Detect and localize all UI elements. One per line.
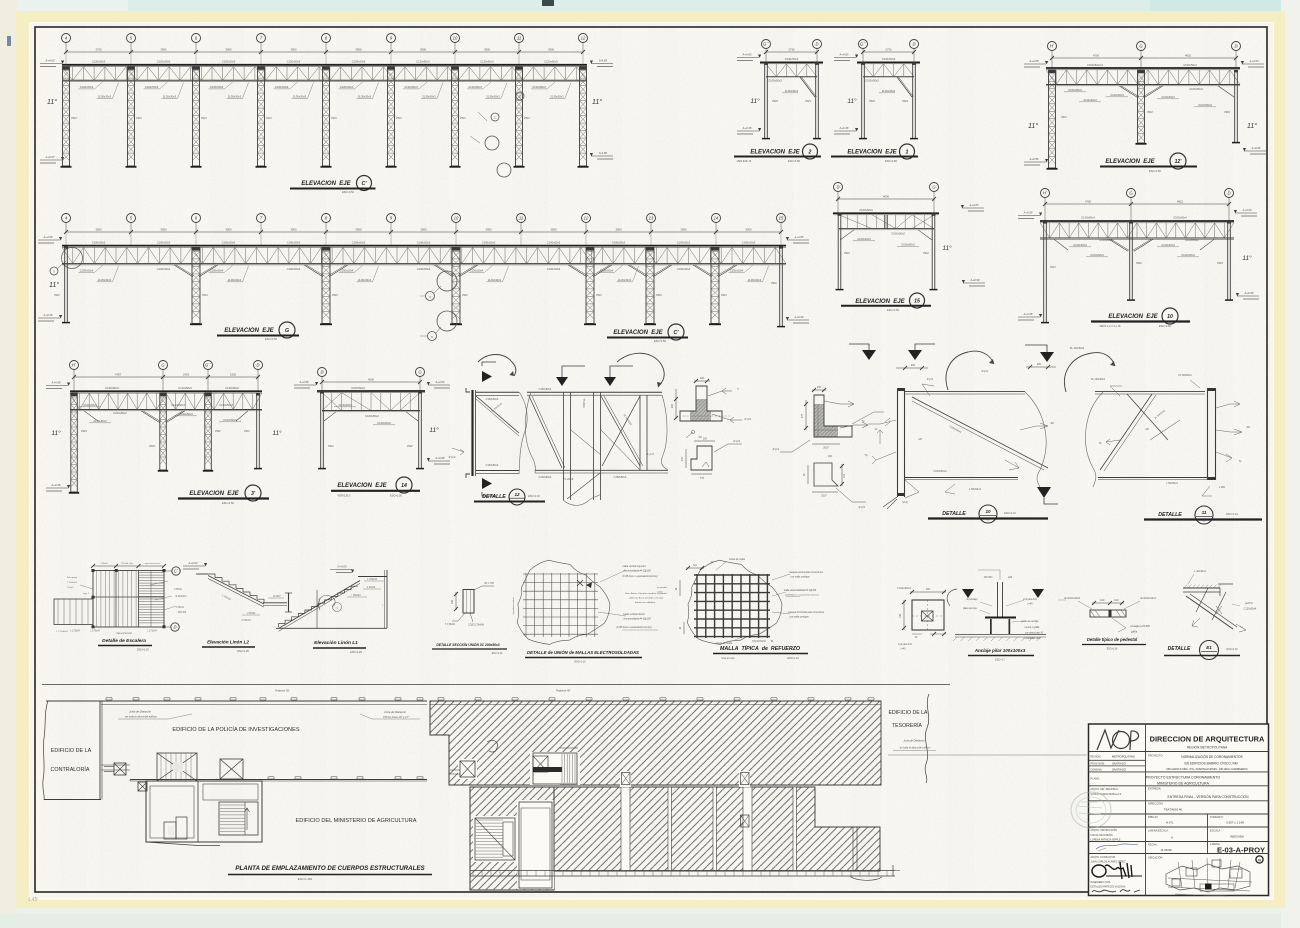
svg-text:10: 10 xyxy=(1167,314,1173,320)
svg-text:110: 110 xyxy=(843,473,846,477)
svg-text:C150x50x4: C150x50x4 xyxy=(600,269,614,273)
svg-text:2L30x30x3: 2L30x30x3 xyxy=(550,95,564,99)
svg-text:2L30x30x3: 2L30x30x3 xyxy=(785,89,799,93)
svg-text:7M: 7M xyxy=(698,436,701,439)
svg-text:C100x50x3: C100x50x3 xyxy=(222,240,236,244)
svg-text:ELEVACION EJE: ELEVACION EJE xyxy=(613,330,663,336)
svg-text:armadura vertical: armadura vertical xyxy=(512,597,515,614)
svg-text:ESC=1:10: ESC=1:10 xyxy=(528,495,540,498)
svg-text:C150x50x4: C150x50x4 xyxy=(730,269,744,273)
svg-text:TEATINOS 40: TEATINOS 40 xyxy=(1164,808,1183,812)
svg-text:2L30x30x3: 2L30x30x3 xyxy=(1073,243,1087,247)
svg-text:A+0.48: A+0.48 xyxy=(43,313,53,317)
svg-text:R p=1: R p=1 xyxy=(773,448,780,451)
svg-text:ELEVACION EJE: ELEVACION EJE xyxy=(750,150,800,156)
svg-text:REGION METROPOLITANA: REGION METROPOLITANA xyxy=(1187,746,1228,750)
svg-text:en toda la altura del edificio: en toda la altura del edificio xyxy=(900,747,931,750)
svg-text:2+0 para A=0: 2+0 para A=0 xyxy=(898,643,913,646)
svg-text:ESC=1:7: ESC=1:7 xyxy=(995,659,1005,662)
svg-text:(x10): (x10) xyxy=(902,501,908,504)
svg-text:PM3: PM3 xyxy=(805,99,811,103)
svg-text:11°: 11° xyxy=(429,426,439,434)
svg-text:C100x50x4: C100x50x4 xyxy=(547,267,561,271)
svg-text:C120x50x3: C120x50x3 xyxy=(532,85,546,89)
svg-text:C100x50x3: C100x50x3 xyxy=(1068,88,1082,92)
svg-text:C120x50x3: C120x50x3 xyxy=(287,60,301,64)
svg-text:ELEVACION EJE: ELEVACION EJE xyxy=(337,483,387,489)
svg-text:C100x50x4: C100x50x4 xyxy=(417,267,431,271)
svg-text:+ cuadrada 100x: + cuadrada 100x xyxy=(1023,637,1041,640)
svg-text:2 30x04: 2 30x04 xyxy=(367,586,376,589)
svg-text:EDIFICIO DE LA POLICÍA DE INVE: EDIFICIO DE LA POLICÍA DE INVESTIGACIONE… xyxy=(172,726,299,733)
svg-text:12(S2 170x04): 12(S2 170x04) xyxy=(468,624,484,627)
svg-text:C100x50x4: C100x50x4 xyxy=(351,386,365,390)
svg-text:C150x50x4: C150x50x4 xyxy=(210,269,224,273)
svg-text:175x04x3: 175x04x3 xyxy=(67,582,77,584)
svg-text:C100x50x3: C100x50x3 xyxy=(1189,87,1203,91)
svg-text:A: A xyxy=(1171,836,1173,840)
svg-text:A+0.48: A+0.48 xyxy=(742,126,752,130)
svg-text:275: 275 xyxy=(801,413,804,418)
svg-text:A+4.63: A+4.63 xyxy=(188,561,198,565)
svg-text:1M: 1M xyxy=(1246,426,1249,429)
svg-text:11°: 11° xyxy=(750,97,760,105)
svg-text:PM3: PM3 xyxy=(1217,261,1223,265)
svg-text:4L p=4: 4L p=4 xyxy=(646,453,654,456)
svg-text:C120x50x3: C120x50x3 xyxy=(416,60,430,64)
svg-text:PM2: PM2 xyxy=(1147,110,1153,114)
svg-text:A+0.80: A+0.80 xyxy=(794,315,804,319)
svg-text:3900: 3900 xyxy=(681,228,687,232)
svg-text:11°: 11° xyxy=(51,429,61,437)
svg-text:D: D xyxy=(256,363,259,368)
svg-text:A+4.65: A+4.65 xyxy=(969,203,979,207)
svg-text:2L30x30x3: 2L30x30x3 xyxy=(857,237,871,241)
svg-text:Y: Y xyxy=(737,387,739,391)
svg-text:ESC=1:50: ESC=1:50 xyxy=(265,337,277,341)
svg-text:U 30x04: U 30x04 xyxy=(247,613,256,615)
svg-text:11°: 11° xyxy=(1247,122,1257,130)
svg-text:C100x50x3: C100x50x3 xyxy=(933,469,947,473)
svg-text:maquea vertical para conexione: maquea vertical para conexiones xyxy=(789,571,824,574)
svg-text:MIN AGRICULTURA - POL. INVESTI: MIN AGRICULTURA - POL. INVESTIGACIONES -… xyxy=(1166,768,1248,771)
svg-text:PM1: PM1 xyxy=(844,251,850,255)
svg-text:D: D xyxy=(320,370,323,375)
svg-text:ESC=1:50: ESC=1:50 xyxy=(222,501,234,505)
svg-text:C100x50x3: C100x50x3 xyxy=(859,208,873,212)
svg-text:PM1: PM1 xyxy=(54,293,60,297)
svg-text:2L30x30x3: 2L30x30x3 xyxy=(163,95,177,99)
svg-text:Detalle típico de pedestal: Detalle típico de pedestal xyxy=(1087,637,1138,642)
svg-text:PM1: PM1 xyxy=(331,116,337,120)
svg-text:NORMALIZACIÓN DE CORONAMIENTOS: NORMALIZACIÓN DE CORONAMIENTOS xyxy=(1181,754,1242,759)
svg-text:1/10: 1/10 xyxy=(1114,599,1119,602)
svg-text:L 175x04: L 175x04 xyxy=(70,631,80,633)
svg-text:electrosoldada #4.2@100: electrosoldada #4.2@100 xyxy=(623,570,651,573)
svg-text:EDIFICIO DE LA: EDIFICIO DE LA xyxy=(889,710,928,716)
svg-text:C100x50x2: C100x50x2 xyxy=(891,232,905,236)
svg-text:A (Anclaje): A (Anclaje) xyxy=(966,598,977,601)
svg-text:PM2: PM2 xyxy=(771,281,777,285)
svg-text:10: 10 xyxy=(453,36,458,41)
svg-text:maquea horizontal para conexio: maquea horizontal para conexiones xyxy=(788,611,825,614)
svg-text:E1: E1 xyxy=(1206,645,1212,650)
svg-text:Anclaje pilar 100x100x3: Anclaje pilar 100x100x3 xyxy=(974,648,1026,653)
svg-text:C120x50x3: C120x50x3 xyxy=(377,421,391,425)
svg-text:C120x50x3: C120x50x3 xyxy=(80,85,94,89)
svg-text:A+4.65: A+4.65 xyxy=(839,53,849,57)
svg-text:(C/38 Acero o equivalente técn: (C/38 Acero o equivalente técnico) xyxy=(785,594,819,597)
svg-text:PM1: PM1 xyxy=(396,116,402,120)
svg-text:D: D xyxy=(1234,44,1237,49)
svg-text:4000: 4000 xyxy=(368,378,374,382)
svg-text:VER EJE 3: VER EJE 3 xyxy=(338,494,352,498)
svg-text:C100x50x3: C100x50x3 xyxy=(677,240,691,244)
svg-text:2L30x30x3: 2L30x30x3 xyxy=(98,95,112,99)
svg-text:C100x50x3: C100x50x3 xyxy=(223,418,237,422)
svg-text:R p=1: R p=1 xyxy=(927,378,934,381)
svg-text:D: D xyxy=(836,185,839,190)
svg-text:ESC=1:10: ESC=1:10 xyxy=(788,657,800,660)
svg-text:PM1: PM1 xyxy=(244,429,250,433)
svg-text:ESC=1:50: ESC=1:50 xyxy=(342,190,354,194)
svg-text:PM1: PM1 xyxy=(656,293,662,297)
svg-text:13: 13 xyxy=(649,216,654,221)
svg-text:15: 15 xyxy=(779,216,784,221)
svg-text:30 = 7M: 30 = 7M xyxy=(484,581,493,585)
svg-text:2L70x30x3: 2L70x30x3 xyxy=(338,403,352,407)
svg-text:C150x50x4: C150x50x4 xyxy=(80,269,94,273)
svg-text:viga estructural: viga estructural xyxy=(116,632,132,635)
svg-text:2L30x30x3: 2L30x30x3 xyxy=(1083,98,1097,102)
svg-text:ESC=1:25: ESC=1:25 xyxy=(137,649,149,652)
svg-text:C120x50x3: C120x50x3 xyxy=(178,386,192,390)
svg-text:A+4.68: A+4.68 xyxy=(299,380,309,384)
svg-text:C120x50x3: C120x50x3 xyxy=(145,85,159,89)
svg-text:TL/3x3: TL/3x3 xyxy=(67,587,74,589)
svg-text:A+0.98: A+0.98 xyxy=(435,456,445,460)
svg-text:3900: 3900 xyxy=(746,228,752,232)
svg-text:G´´: G´´ xyxy=(763,42,770,47)
svg-text:A+4.63: A+4.63 xyxy=(1249,59,1259,63)
svg-text:riel 110x110x4: riel 110x110x4 xyxy=(1064,597,1080,600)
svg-text:INDICADA: INDICADA xyxy=(1230,835,1244,839)
svg-text:150 en pisos 10° y 11°: 150 en pisos 10° y 11° xyxy=(383,715,409,719)
svg-text:DETALLE de UNIÓN de MALLAS ELE: DETALLE de UNIÓN de MALLAS ELECTROSOLDAD… xyxy=(527,650,639,655)
svg-text:perfil C: perfil C xyxy=(1244,602,1253,605)
svg-text:LORENA PATRICIA IEPPLE: LORENA PATRICIA IEPPLE xyxy=(1091,839,1121,842)
svg-text:PM3: PM3 xyxy=(869,99,875,103)
svg-text:2730: 2730 xyxy=(886,48,892,52)
svg-text:LAMINA/ESCALA:: LAMINA/ESCALA: xyxy=(1148,830,1169,833)
svg-text:W30: W30 xyxy=(319,597,321,602)
svg-text:2L30x30x3: 2L30x30x3 xyxy=(488,278,502,282)
svg-text:DETA 1,2,3 4 y 16: DETA 1,2,3 4 y 16 xyxy=(1100,324,1121,328)
svg-text:malla electrosoldada #4.2@100: malla electrosoldada #4.2@100 xyxy=(784,589,817,592)
svg-text:TS-160x8: TS-160x8 xyxy=(563,478,574,481)
svg-text:spfb: spfb xyxy=(1008,577,1013,579)
svg-text:S-4.65: S-4.65 xyxy=(599,59,608,63)
svg-text:11: 11 xyxy=(517,36,521,41)
svg-text:MALLA TÍPICA de REFUERZO: MALLA TÍPICA de REFUERZO xyxy=(720,645,801,652)
svg-text:PM1: PM1 xyxy=(596,293,602,297)
svg-text:ESCALA:: ESCALA: xyxy=(1210,829,1221,833)
svg-text:PM2: PM2 xyxy=(923,251,929,255)
svg-text:ESC=1:10: ESC=1:10 xyxy=(492,653,503,655)
svg-text:C100x50x3: C100x50x3 xyxy=(547,240,561,244)
svg-text:Junta de Dilatación: Junta de Dilatación xyxy=(903,740,925,743)
svg-text:PL 100x50x4: PL 100x50x4 xyxy=(1070,347,1085,350)
svg-text:ESC=1:50: ESC=1:50 xyxy=(390,494,402,498)
svg-text:2: 2 xyxy=(808,150,812,156)
svg-text:100: 100 xyxy=(700,377,705,380)
svg-text:H´: H´ xyxy=(1043,191,1048,196)
svg-text:C100x50x3: C100x50x3 xyxy=(179,412,193,416)
svg-text:DIR 300: DIR 300 xyxy=(178,612,187,614)
svg-text:2 TRU04: 2 TRU04 xyxy=(241,620,251,622)
svg-text:ESC=1:10: ESC=1:10 xyxy=(1227,648,1239,651)
svg-text:L=40: L=40 xyxy=(900,649,906,651)
svg-text:3900: 3900 xyxy=(356,228,362,232)
svg-text:con malla contigua: con malla contigua xyxy=(789,616,809,619)
svg-text:C100x50x4: C100x50x4 xyxy=(1173,216,1187,220)
svg-text:L 175x04: L 175x04 xyxy=(90,631,100,633)
svg-text:C150x50x3-3: C150x50x3-3 xyxy=(1087,63,1103,67)
svg-text:PM1: PM1 xyxy=(201,116,207,120)
svg-text:EDIFICIO DEL MINISTERIO DE AGR: EDIFICIO DEL MINISTERIO DE AGRICULTURA xyxy=(296,818,417,824)
svg-text:3900: 3900 xyxy=(486,228,492,232)
svg-text:PM1: PM1 xyxy=(1061,115,1067,119)
svg-text:ELEVACION EJE: ELEVACION EJE xyxy=(1108,314,1158,320)
svg-text:placa de tope: placa de tope xyxy=(963,607,978,610)
svg-text:PM3: PM3 xyxy=(902,99,908,103)
svg-text:C100x50x3: C100x50x3 xyxy=(157,240,171,244)
svg-text:Junta de Dilatación: Junta de Dilatación xyxy=(129,710,152,714)
svg-text:PLANTA DE EMPLAZAMIENTO DE CUE: PLANTA DE EMPLAZAMIENTO DE CUERPOS ESTRU… xyxy=(235,865,425,872)
svg-text:L 50x50x4: L 50x50x4 xyxy=(1166,482,1178,485)
svg-text:A+0.90: A+0.90 xyxy=(970,278,980,282)
svg-text:ENTREGA:: ENTREGA: xyxy=(1148,787,1162,791)
svg-text:ESC=1:50: ESC=1:50 xyxy=(887,308,899,312)
svg-text:tuerca y golilla: tuerca y golilla xyxy=(1025,626,1040,629)
svg-text:C100x50x3: C100x50x3 xyxy=(1185,238,1199,242)
svg-text:170: 170 xyxy=(681,456,684,461)
svg-text:PLANO:: PLANO: xyxy=(1091,777,1101,781)
svg-text:C120x50x4: C120x50x4 xyxy=(1244,608,1257,611)
svg-text:R p=1: R p=1 xyxy=(734,439,742,443)
svg-text:A+0.48: A+0.48 xyxy=(839,126,849,130)
svg-text:PM1: PM1 xyxy=(1050,265,1056,269)
svg-text:175x04 (Tp): 175x04 (Tp) xyxy=(121,563,133,565)
svg-text:2L30x30x3: 2L30x30x3 xyxy=(358,278,372,282)
svg-text:100 H04: 100 H04 xyxy=(984,577,993,579)
svg-text:2L30x30x3: 2L30x30x3 xyxy=(1161,95,1175,99)
svg-text:C120x50x3: C120x50x3 xyxy=(92,60,106,64)
svg-text:2007: 2007 xyxy=(823,447,829,450)
svg-text:DETALLE: DETALLE xyxy=(1158,512,1182,518)
svg-text:100: 100 xyxy=(899,613,902,618)
svg-text:3900: 3900 xyxy=(226,228,232,232)
svg-text:PM3: PM3 xyxy=(149,444,155,448)
svg-text:DETALLE: DETALLE xyxy=(1168,646,1191,652)
svg-text:I 150x04: I 150x04 xyxy=(351,594,361,597)
svg-text:INGENIERO CIVIL: INGENIERO CIVIL xyxy=(1091,881,1112,884)
svg-text:Teatinos 40: Teatinos 40 xyxy=(556,689,571,693)
svg-text:se pueden: se pueden xyxy=(657,587,668,589)
svg-text:A+4.63: A+4.63 xyxy=(45,59,55,63)
svg-text:borde de malla: borde de malla xyxy=(716,642,732,645)
svg-text:C130x50x4: C130x50x4 xyxy=(1081,216,1095,220)
svg-text:FORMATO:: FORMATO: xyxy=(1210,815,1224,819)
svg-text:ESC=1:50: ESC=1:50 xyxy=(788,159,800,163)
svg-text:C150x50x3: C150x50x3 xyxy=(539,388,552,391)
svg-text:200: 200 xyxy=(671,403,674,408)
svg-text:11°: 11° xyxy=(272,429,282,437)
svg-text:3900: 3900 xyxy=(420,48,426,52)
svg-text:B 150?: B 150? xyxy=(273,596,281,598)
svg-text:2L30x30x3: 2L30x30x3 xyxy=(422,95,436,99)
svg-text:100: 100 xyxy=(926,588,931,591)
svg-text:3900: 3900 xyxy=(548,48,554,52)
svg-text:3900: 3900 xyxy=(161,228,167,232)
svg-text:C120x50x3: C120x50x3 xyxy=(404,85,418,89)
svg-text:PM1: PM1 xyxy=(460,116,466,120)
svg-text:D: D xyxy=(815,42,818,47)
svg-text:C100x50x3: C100x50x3 xyxy=(742,240,756,244)
svg-text:perno de anclaje: perno de anclaje xyxy=(1022,620,1040,623)
svg-text:11: 11 xyxy=(519,216,523,221)
svg-text:A+4.63: A+4.63 xyxy=(1242,208,1252,212)
svg-text:R p=4: R p=4 xyxy=(449,456,456,459)
svg-text:VER EJE 13: VER EJE 13 xyxy=(737,159,752,163)
svg-text:100: 100 xyxy=(817,386,822,389)
svg-text:ESC=1:10: ESC=1:10 xyxy=(575,661,587,664)
svg-text:MINISTERIO DE AGRICULTURA: MINISTERIO DE AGRICULTURA xyxy=(1157,781,1210,785)
svg-text:A+0.98: A+0.98 xyxy=(1251,146,1261,150)
svg-text:H´: H´ xyxy=(1050,44,1055,49)
svg-text:R p=1: R p=1 xyxy=(859,506,866,509)
svg-text:C130x50x2: C130x50x2 xyxy=(225,386,239,390)
svg-text:A+4.68: A+4.68 xyxy=(51,381,61,385)
svg-text:C100x50x3: C100x50x3 xyxy=(768,79,782,83)
svg-text:C150x50x4: C150x50x4 xyxy=(1183,63,1197,67)
svg-text:4787: 4787 xyxy=(115,373,121,377)
svg-text:200: 200 xyxy=(911,364,916,367)
svg-text:C150x50x3: C150x50x3 xyxy=(105,386,119,390)
svg-text:12: 12 xyxy=(514,492,520,497)
svg-text:12: 12 xyxy=(584,216,589,221)
svg-text:C100x50x4: C100x50x4 xyxy=(677,267,691,271)
svg-text:C120x50x3: C120x50x3 xyxy=(1110,93,1124,97)
svg-text:L 175x04: L 175x04 xyxy=(147,631,157,633)
svg-text:A+4.68: A+4.68 xyxy=(1029,59,1039,63)
svg-text:ESC=1:50: ESC=1:50 xyxy=(654,339,666,343)
svg-text:14: 14 xyxy=(714,216,719,221)
svg-text:PM1: PM1 xyxy=(721,293,727,297)
svg-text:PM3: PM3 xyxy=(1224,110,1230,114)
svg-text:C120x50x3: C120x50x3 xyxy=(352,60,366,64)
svg-text:2L30x30x3: 2L30x30x3 xyxy=(228,95,242,99)
svg-text:ELEVACION EJE: ELEVACION EJE xyxy=(224,328,274,334)
svg-text:CONTRALORÍA: CONTRALORÍA xyxy=(51,766,90,773)
svg-text:1/10: 1/10 xyxy=(1100,599,1105,602)
svg-text:3900: 3900 xyxy=(551,228,557,232)
svg-text:PM1: PM1 xyxy=(328,444,334,448)
svg-text:C150x50x3: C150x50x3 xyxy=(614,476,627,479)
svg-text:2L30x30x3: 2L30x30x3 xyxy=(228,278,242,282)
svg-text:malla vertical inferior: malla vertical inferior xyxy=(623,613,645,616)
svg-text:C130x50x3: C130x50x3 xyxy=(785,57,799,61)
svg-text:DETALLE: DETALLE xyxy=(942,511,966,517)
svg-text:D: D xyxy=(173,625,176,630)
svg-text:ESC=1:10: ESC=1:10 xyxy=(1004,512,1016,515)
svg-text:PM1: PM1 xyxy=(462,293,468,297)
svg-text:2L30x30x3: 2L30x30x3 xyxy=(1161,243,1175,247)
svg-text:ESC=1:50: ESC=1:50 xyxy=(1149,169,1161,173)
svg-text:soldar las Barra de borde, con: soldar las Barra de borde, con igual xyxy=(629,597,664,600)
svg-text:C100x50x3: C100x50x3 xyxy=(486,464,499,467)
svg-text:T 170x04: T 170x04 xyxy=(445,623,456,626)
svg-text:C100x50x3: C100x50x3 xyxy=(92,240,106,244)
svg-text:PM2: PM2 xyxy=(407,444,413,448)
svg-text:C': C' xyxy=(674,330,680,336)
svg-text:Elevación Linón L1: Elevación Linón L1 xyxy=(314,640,358,646)
svg-text:FECHA:: FECHA: xyxy=(1148,843,1158,847)
svg-text:ELEVACION EJE: ELEVACION EJE xyxy=(855,299,905,305)
svg-text:1: 1 xyxy=(906,150,909,156)
svg-text:L 50x50x4: L 50x50x4 xyxy=(969,487,981,491)
svg-text:EDIFICIO DE LA: EDIFICIO DE LA xyxy=(51,748,92,754)
svg-text:A+0.98: A+0.98 xyxy=(1244,291,1254,295)
svg-text:borde de malla: borde de malla xyxy=(729,558,745,561)
svg-text:C120x50x3: C120x50x3 xyxy=(480,60,494,64)
svg-text:C150x50x2: C150x50x2 xyxy=(1099,238,1113,242)
svg-text:con placa bajo 30: con placa bajo 30 xyxy=(1025,633,1044,635)
svg-text:TS 30x3: TS 30x3 xyxy=(582,399,585,409)
svg-text:2423: 2423 xyxy=(183,373,189,377)
svg-text:PROYECTO:: PROYECTO: xyxy=(1148,754,1164,758)
svg-text:Junta de Dilatación: Junta de Dilatación xyxy=(384,710,407,714)
svg-text:PROYECTO ESTRUCTURA CORONAMIEN: PROYECTO ESTRUCTURA CORONAMIENTO xyxy=(1146,775,1220,779)
svg-text:11°: 11° xyxy=(592,98,602,106)
svg-text:3900: 3900 xyxy=(616,228,622,232)
svg-text:C100x50x3: C100x50x3 xyxy=(83,403,97,407)
svg-text:3900: 3900 xyxy=(291,228,297,232)
svg-text:ESC=1:16: ESC=1:16 xyxy=(1107,649,1118,651)
svg-text:C100x50x3: C100x50x3 xyxy=(1198,103,1212,107)
svg-text:DETALLE: DETALLE xyxy=(482,494,506,500)
svg-text:A+0.97: A+0.97 xyxy=(45,155,55,159)
svg-text:4700: 4700 xyxy=(1085,200,1091,204)
svg-text:C100x50x4: C100x50x4 xyxy=(287,267,301,271)
svg-text:G´´: G´´ xyxy=(205,363,212,368)
svg-text:ARQTO. CONSULTOR: ARQTO. CONSULTOR xyxy=(1091,856,1116,859)
svg-text:S-4.80: S-4.80 xyxy=(599,151,608,155)
svg-text:(C/38 Acero o equivalente técn: (C/38 Acero o equivalente técnico) xyxy=(616,626,651,629)
svg-text:C150x50x3: C150x50x3 xyxy=(486,398,499,401)
svg-text:C100x50x2: C100x50x2 xyxy=(365,414,379,418)
svg-text:G: G xyxy=(285,328,289,334)
svg-text:C100x50x3: C100x50x3 xyxy=(1090,253,1104,257)
svg-text:11°: 11° xyxy=(847,97,857,105)
svg-text:SANTIAGO: SANTIAGO xyxy=(1112,767,1126,771)
svg-text:C120x50x3: C120x50x3 xyxy=(157,60,171,64)
svg-text:A+4.65: A+4.65 xyxy=(794,235,804,239)
svg-text:3900: 3900 xyxy=(291,48,297,52)
svg-text:C100x50x3: C100x50x3 xyxy=(352,240,366,244)
svg-text:K+4.63: K+4.63 xyxy=(338,565,347,569)
svg-text:PM2: PM2 xyxy=(215,429,221,433)
